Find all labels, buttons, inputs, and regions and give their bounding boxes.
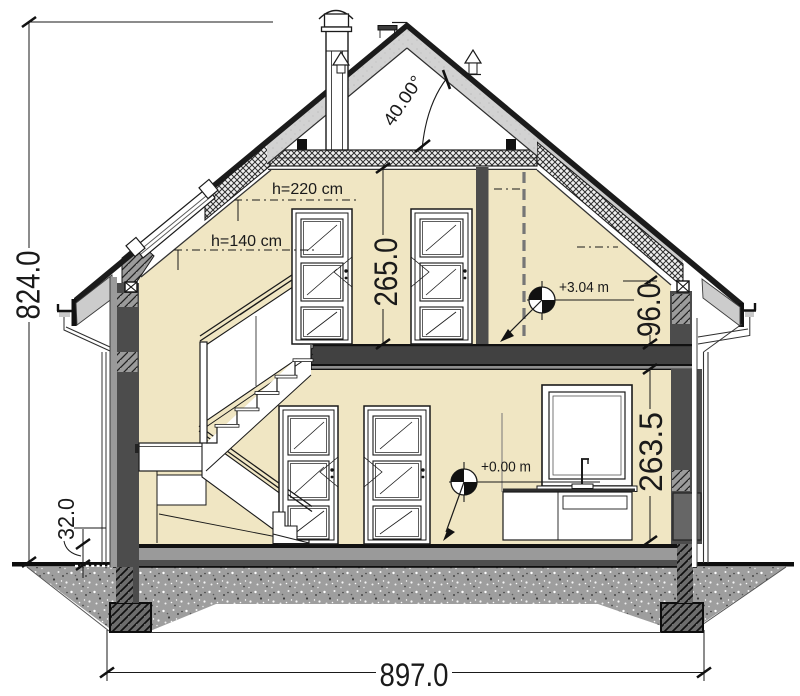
svg-text:+3.04 m: +3.04 m [559,280,609,296]
svg-text:32.0: 32.0 [53,498,79,540]
svg-text:96.0: 96.0 [631,283,667,337]
svg-text:265.0: 265.0 [368,238,404,307]
svg-text:h=220 cm: h=220 cm [272,181,343,198]
svg-text:824.0: 824.0 [10,251,47,320]
svg-text:h=140 cm: h=140 cm [211,233,282,250]
svg-text:263.5: 263.5 [633,412,669,492]
svg-text:897.0: 897.0 [380,657,449,693]
svg-text:+0.00 m: +0.00 m [481,460,531,476]
